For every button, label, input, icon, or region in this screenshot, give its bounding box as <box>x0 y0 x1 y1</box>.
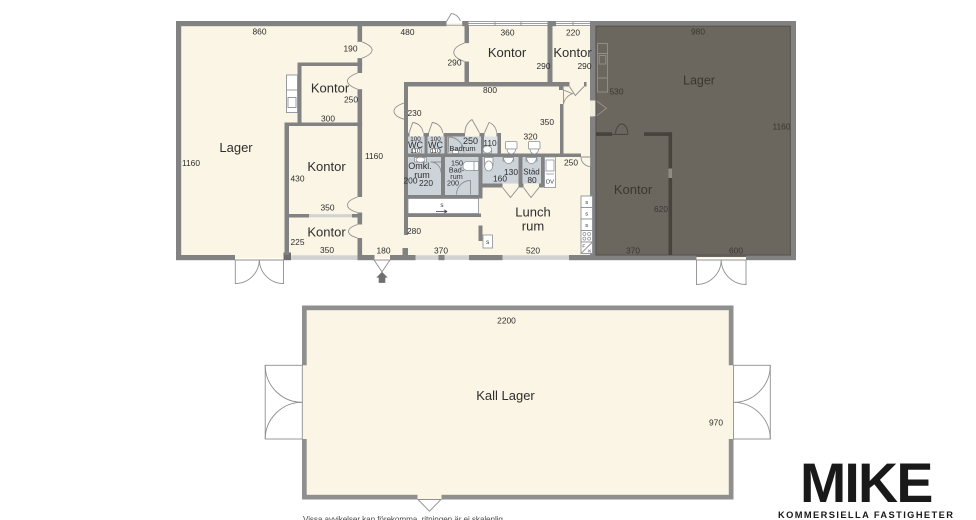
svg-text:1160: 1160 <box>365 151 383 161</box>
svg-text:s: s <box>585 200 588 206</box>
svg-text:Kontor: Kontor <box>614 182 653 197</box>
svg-text:350: 350 <box>540 117 554 127</box>
svg-text:110: 110 <box>430 148 441 155</box>
svg-text:Vissa avvikelser kan förekomma: Vissa avvikelser kan förekomma, ritninge… <box>303 515 503 520</box>
svg-text:230: 230 <box>408 108 422 118</box>
svg-text:1160: 1160 <box>772 122 790 132</box>
svg-text:860: 860 <box>253 27 267 37</box>
svg-text:F: F <box>582 244 585 250</box>
svg-text:980: 980 <box>691 27 705 37</box>
svg-text:360: 360 <box>501 28 515 38</box>
svg-text:220: 220 <box>419 178 433 188</box>
svg-text:s: s <box>585 223 588 229</box>
svg-text:350: 350 <box>320 245 334 255</box>
svg-text:180: 180 <box>377 246 391 256</box>
svg-text:Kontor: Kontor <box>488 45 527 60</box>
svg-text:110: 110 <box>410 148 421 155</box>
svg-text:520: 520 <box>526 246 540 256</box>
svg-text:Lager: Lager <box>683 74 715 88</box>
svg-text:290: 290 <box>448 58 462 68</box>
svg-text:800: 800 <box>483 85 497 95</box>
svg-text:Lunch: Lunch <box>515 205 550 220</box>
svg-text:600: 600 <box>729 246 743 256</box>
svg-text:s: s <box>585 212 588 218</box>
svg-text:370: 370 <box>626 246 640 256</box>
svg-text:480: 480 <box>401 27 415 37</box>
svg-text:620: 620 <box>654 204 668 214</box>
svg-text:220: 220 <box>566 28 580 38</box>
svg-text:530: 530 <box>610 87 624 97</box>
svg-text:2200: 2200 <box>497 316 516 326</box>
svg-text:200: 200 <box>447 179 459 188</box>
svg-text:Kontor: Kontor <box>307 159 346 174</box>
svg-text:430: 430 <box>291 174 305 184</box>
svg-text:80: 80 <box>527 175 537 185</box>
svg-text:200: 200 <box>404 176 418 186</box>
svg-text:Kall Lager: Kall Lager <box>476 388 535 403</box>
svg-text:Kontor: Kontor <box>311 81 350 96</box>
svg-text:225: 225 <box>291 237 305 247</box>
svg-text:Badrum: Badrum <box>449 144 475 153</box>
svg-text:280: 280 <box>407 226 421 236</box>
svg-text:1160: 1160 <box>182 158 200 168</box>
svg-text:rum: rum <box>522 219 544 234</box>
svg-text:250: 250 <box>564 158 578 168</box>
svg-text:160: 160 <box>493 174 507 184</box>
svg-text:Kontor: Kontor <box>553 45 592 60</box>
svg-text:370: 370 <box>434 246 448 256</box>
svg-text:350: 350 <box>321 203 335 213</box>
svg-text:s: s <box>486 239 489 246</box>
svg-text:290: 290 <box>537 61 551 71</box>
svg-text:Kontor: Kontor <box>307 225 346 240</box>
svg-text:Lager: Lager <box>219 140 253 155</box>
svg-text:320: 320 <box>524 132 538 142</box>
svg-text:970: 970 <box>709 418 723 428</box>
svg-text:DV: DV <box>546 180 554 186</box>
svg-text:300: 300 <box>321 114 335 124</box>
svg-text:290: 290 <box>578 61 592 71</box>
svg-text:190: 190 <box>344 44 358 54</box>
svg-text:110: 110 <box>483 138 497 148</box>
svg-text:250: 250 <box>344 95 358 105</box>
svg-text:s: s <box>440 202 443 209</box>
